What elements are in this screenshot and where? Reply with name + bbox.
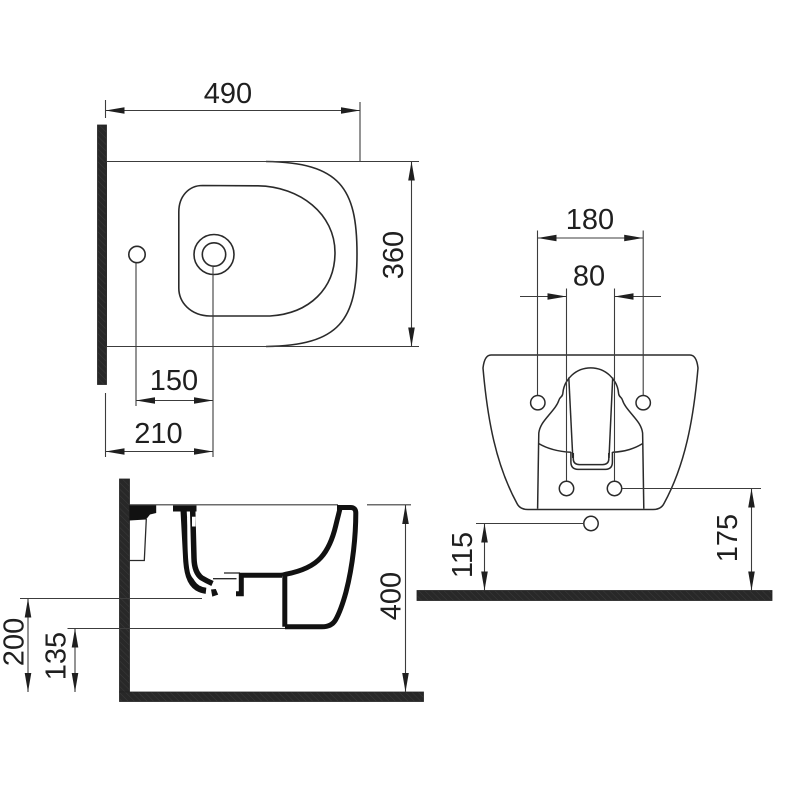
svg-text:80: 80	[573, 261, 605, 293]
svg-text:200: 200	[0, 618, 31, 666]
svg-text:175: 175	[712, 514, 744, 562]
svg-text:150: 150	[150, 365, 198, 397]
svg-text:135: 135	[41, 632, 73, 680]
svg-text:115: 115	[447, 532, 479, 578]
svg-text:490: 490	[204, 78, 252, 110]
svg-text:210: 210	[134, 418, 182, 450]
svg-text:180: 180	[566, 204, 614, 236]
svg-text:400: 400	[376, 572, 408, 620]
svg-text:360: 360	[378, 231, 410, 279]
